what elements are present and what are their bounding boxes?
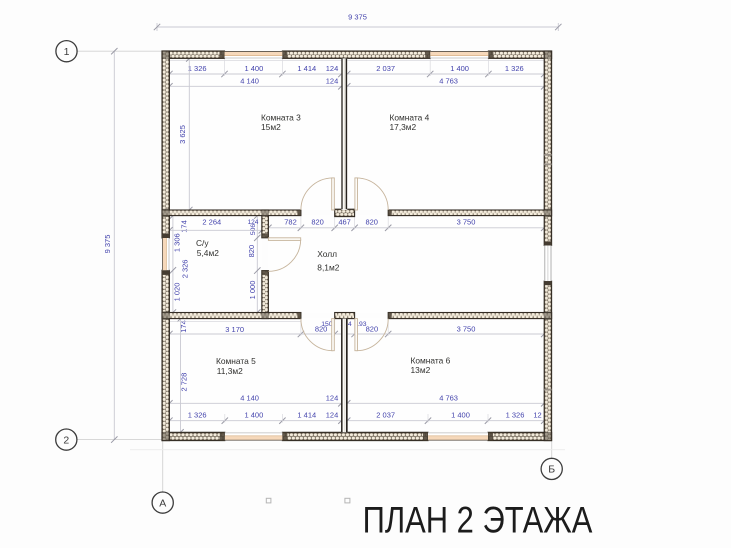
svg-text:17,3м2: 17,3м2 — [390, 122, 417, 132]
svg-text:782: 782 — [284, 217, 297, 226]
svg-text:5,4м2: 5,4м2 — [197, 248, 219, 258]
svg-text:3 750: 3 750 — [457, 325, 476, 334]
svg-text:С/у: С/у — [196, 238, 209, 248]
svg-text:1 400: 1 400 — [450, 64, 469, 73]
svg-text:3 625: 3 625 — [178, 125, 187, 144]
svg-text:506: 506 — [250, 224, 257, 236]
svg-text:124: 124 — [326, 393, 339, 402]
svg-text:820: 820 — [311, 217, 324, 226]
svg-text:124: 124 — [326, 76, 339, 85]
svg-text:Комната 3: Комната 3 — [261, 112, 301, 122]
svg-text:1 400: 1 400 — [245, 410, 264, 419]
svg-text:124: 124 — [326, 410, 339, 419]
svg-text:174: 174 — [179, 320, 188, 333]
svg-text:8,1м2: 8,1м2 — [317, 263, 339, 273]
svg-text:1 400: 1 400 — [451, 410, 470, 419]
svg-text:9 375: 9 375 — [103, 235, 112, 254]
svg-text:174: 174 — [179, 220, 188, 233]
svg-text:1 326: 1 326 — [188, 410, 207, 419]
svg-text:1 400: 1 400 — [245, 64, 264, 73]
svg-text:ПЛАН 2 ЭТАЖА: ПЛАН 2 ЭТАЖА — [363, 500, 593, 541]
svg-text:Холл: Холл — [317, 249, 337, 259]
svg-text:А: А — [159, 497, 166, 509]
svg-text:4 763: 4 763 — [439, 393, 458, 402]
svg-text:4 763: 4 763 — [439, 76, 458, 85]
svg-text:2 037: 2 037 — [376, 410, 395, 419]
svg-text:15м2: 15м2 — [261, 122, 281, 132]
svg-text:3 170: 3 170 — [225, 325, 244, 334]
svg-text:820: 820 — [365, 217, 378, 226]
svg-text:13м2: 13м2 — [411, 365, 431, 375]
svg-text:1 326: 1 326 — [506, 410, 525, 419]
svg-text:12: 12 — [533, 410, 541, 419]
svg-text:Комната 5: Комната 5 — [216, 356, 256, 366]
svg-text:1 306: 1 306 — [172, 233, 181, 252]
svg-text:820: 820 — [366, 325, 379, 334]
svg-text:820: 820 — [247, 245, 256, 258]
svg-text:2 264: 2 264 — [202, 217, 221, 226]
svg-text:1 414: 1 414 — [297, 64, 316, 73]
svg-text:1 000: 1 000 — [248, 281, 257, 300]
svg-text:2 728: 2 728 — [180, 373, 189, 392]
svg-text:1: 1 — [64, 46, 70, 58]
svg-text:Комната 4: Комната 4 — [390, 112, 430, 122]
svg-text:Комната 6: Комната 6 — [411, 355, 451, 365]
svg-text:4 140: 4 140 — [240, 393, 259, 402]
svg-text:1 326: 1 326 — [188, 64, 207, 73]
svg-text:2 326: 2 326 — [180, 260, 189, 279]
svg-text:1 020: 1 020 — [173, 283, 182, 302]
svg-text:9 375: 9 375 — [348, 13, 367, 22]
svg-text:Б: Б — [548, 464, 555, 476]
svg-text:11,3м2: 11,3м2 — [217, 366, 243, 376]
svg-text:4 140: 4 140 — [240, 76, 259, 85]
svg-text:124: 124 — [326, 64, 339, 73]
svg-text:150: 150 — [321, 321, 333, 328]
svg-text:2 037: 2 037 — [376, 64, 395, 73]
svg-text:1 326: 1 326 — [505, 64, 524, 73]
svg-text:1 414: 1 414 — [297, 410, 316, 419]
svg-text:3 750: 3 750 — [457, 217, 476, 226]
svg-text:467: 467 — [338, 217, 351, 226]
svg-text:2: 2 — [63, 434, 69, 446]
